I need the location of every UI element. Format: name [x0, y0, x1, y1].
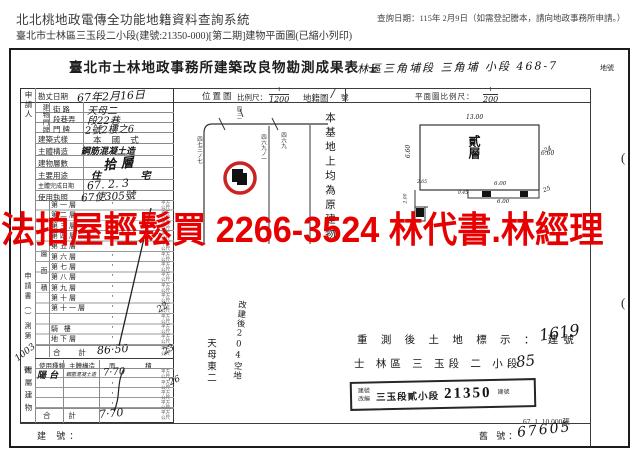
stamp-prefix: 建號改編	[357, 389, 371, 404]
dimension-bottom: 6.00	[494, 181, 506, 187]
resurvey-note-line2-value: 85	[515, 351, 536, 371]
lot-label: 四三一	[235, 106, 242, 121]
building-footprint	[232, 169, 247, 185]
floor-plan-scale-fraction: 1 200	[483, 87, 498, 104]
area-total-label: 合 計	[53, 347, 94, 358]
form-title: 臺北市士林地政事務所建築改良物勘測成果表 士	[69, 56, 378, 76]
old-no-label: 舊 號：	[479, 429, 520, 442]
location-map-scale-label: 比例尺：	[237, 92, 267, 103]
floor-label: 第十一層	[51, 303, 87, 313]
floor-label: 第八層	[51, 272, 78, 282]
floor-label: 第九層	[51, 283, 78, 293]
document-subtitle: 臺北市士林區三玉段二小段(建號:21350-000)[第二期]建物平面圖(已縮小…	[16, 27, 352, 42]
annex-side-label: 附屬建物	[23, 366, 34, 416]
land-registry-printout-page: 北北桃地政電傳全功能地籍資料查詢系統 查詢日期：115年 2月9日（如需登記謄本…	[0, 0, 640, 452]
structure-label: 主體構造	[38, 146, 68, 157]
annex-row-use: 陽 台	[37, 368, 58, 381]
floors-label: 建物層數	[38, 158, 68, 169]
divider	[20, 423, 590, 424]
red-ad-overlay-text: 法拍屋輕鬆買 2266-3524 林代書.林經理	[1, 201, 609, 253]
scale-numerator: 1	[269, 87, 289, 95]
lot-label: 四六九	[279, 132, 287, 149]
divider	[35, 358, 174, 359]
resurvey-note-line2: 士 林區 三 玉段 二 小段	[354, 356, 521, 371]
floor-label: 地下層	[51, 334, 78, 344]
unit-stamp: 平方公尺	[160, 272, 171, 283]
system-title: 北北桃地政電傳全功能地籍資料查詢系統	[16, 9, 250, 28]
land-section-handwritten: 林區三角埔段 三角埔 小段 468-7	[357, 57, 558, 77]
cadastral-map-handwritten: ∕	[331, 87, 335, 100]
complete-date-label: 主體完成日期	[38, 181, 74, 190]
floor-plan-room-label: 貳層	[466, 135, 483, 159]
form-title-text: 臺北市士林地政事務所建築改良物勘測成果表	[69, 60, 359, 75]
floor-label: 第六層	[51, 252, 78, 262]
use-label: 主要用途	[38, 170, 68, 181]
location-map-title: 位置圖	[202, 90, 234, 102]
annex-total-label: 合 計	[43, 410, 84, 421]
scale-numerator: 1	[483, 87, 498, 95]
dimension-small: 2.65	[417, 180, 427, 185]
building-no-label: 建 號：	[37, 429, 82, 442]
location-map-scale-fraction: 1 1200	[269, 87, 289, 104]
strike-through-stroke	[106, 365, 131, 415]
floor-label: 第十層	[51, 293, 78, 303]
lot-label: 四六九ノ一	[259, 134, 267, 162]
style-label: 建築式樣	[38, 134, 68, 145]
scale-denominator: 200	[483, 95, 498, 104]
floor-label: 第七層	[51, 262, 78, 272]
building-no-stamp: 建號改編 三玉段貳小段 21350 建號	[350, 378, 537, 411]
handwritten-note-vertical: 天母東二	[203, 338, 217, 384]
annex-row-structure: 鋼筋混凝土造	[66, 371, 96, 378]
stamp-suffix: 建號	[496, 389, 510, 396]
dimension-top: 13.00	[466, 114, 483, 121]
cadastral-no-suffix: 號	[341, 92, 349, 103]
applicant-label: 申請人	[23, 91, 34, 120]
floor-label: 騎 樓	[51, 324, 73, 334]
margin-paren: (	[621, 150, 625, 166]
handwritten-note-vertical: 改建後204空地	[230, 300, 248, 381]
application-no-vertical: 申請書（）測第	[23, 272, 33, 344]
divider	[49, 102, 50, 132]
query-date: 查詢日期：115年 2月9日（如需登記謄本，請向地政事務所申請。）	[377, 12, 625, 24]
stamp-section: 三玉段貳小段	[376, 388, 439, 403]
unit-stamp: 平方公尺	[160, 410, 171, 421]
dimension-left: 6.60	[405, 145, 412, 158]
margin-paren: (	[621, 295, 625, 311]
stamp-number: 21350	[444, 385, 492, 403]
land-no-label: 地號	[600, 63, 614, 73]
divider	[590, 88, 591, 447]
lot-label: 四七三ノ七	[195, 136, 203, 164]
dimension-small: 0.45	[458, 191, 468, 196]
floor-plan-scale-label: 平面圖比例尺：	[415, 91, 475, 102]
address-side-label: 建物門牌	[39, 104, 49, 134]
survey-date-label: 勘丈日期	[38, 91, 68, 102]
